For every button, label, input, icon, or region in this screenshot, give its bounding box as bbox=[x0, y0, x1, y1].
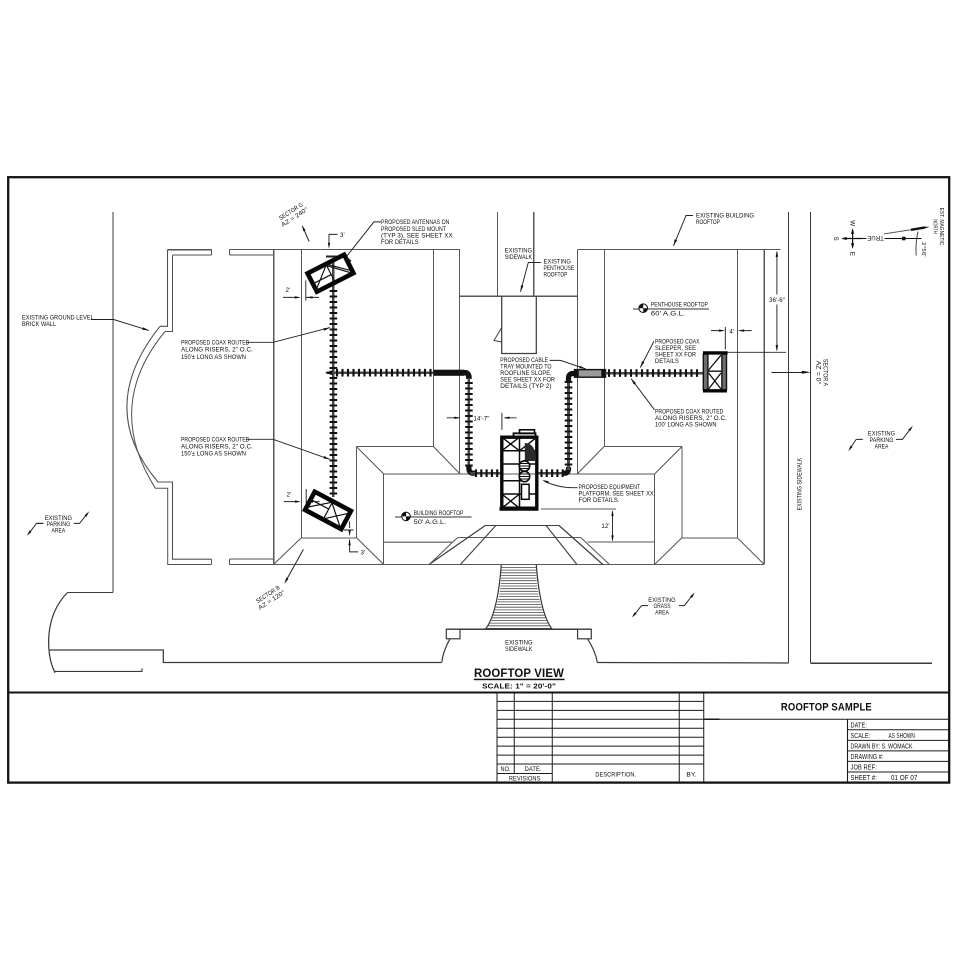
svg-text:DRAWING #:: DRAWING #: bbox=[851, 754, 884, 761]
svg-text:DESCRIPTION.: DESCRIPTION. bbox=[595, 771, 636, 778]
svg-text:BUILDING ROOFTOP: BUILDING ROOFTOP bbox=[414, 510, 464, 517]
svg-text:3': 3' bbox=[361, 549, 366, 556]
svg-text:FOR DETAILS: FOR DETAILS bbox=[381, 239, 419, 246]
svg-text:50' A.G.L.: 50' A.G.L. bbox=[414, 519, 447, 526]
svg-text:3': 3' bbox=[340, 232, 345, 239]
svg-text:NORTH: NORTH bbox=[932, 219, 938, 234]
svg-text:AREA: AREA bbox=[875, 443, 889, 450]
svg-text:ROOFTOP SAMPLE: ROOFTOP SAMPLE bbox=[781, 702, 872, 714]
svg-text:SIDEWALK: SIDEWALK bbox=[505, 255, 532, 261]
svg-text:W: W bbox=[849, 220, 856, 226]
svg-text:SCALE: 1" = 20'-0": SCALE: 1" = 20'-0" bbox=[482, 682, 556, 691]
svg-text:2': 2' bbox=[286, 287, 291, 294]
svg-text:PROPOSED COAX ROUTED: PROPOSED COAX ROUTED bbox=[181, 340, 250, 347]
svg-text:E: E bbox=[849, 252, 856, 256]
svg-text:AZ = 0°: AZ = 0° bbox=[814, 361, 821, 385]
svg-text:AREA: AREA bbox=[655, 610, 669, 617]
svg-text:4': 4' bbox=[729, 328, 734, 335]
svg-text:AS SHOWN: AS SHOWN bbox=[889, 733, 915, 740]
svg-text:EXISTING SIDEWALK: EXISTING SIDEWALK bbox=[798, 458, 804, 511]
svg-text:PROPOSED COAX ROUTED: PROPOSED COAX ROUTED bbox=[181, 436, 250, 443]
svg-text:EXISTING: EXISTING bbox=[505, 249, 533, 255]
svg-text:TRUE: TRUE bbox=[867, 234, 884, 240]
svg-text:REVISIONS: REVISIONS bbox=[509, 776, 541, 783]
svg-text:SHEET #:: SHEET #: bbox=[851, 775, 877, 782]
svg-text:DATE.: DATE. bbox=[525, 766, 542, 773]
svg-text:ALONG RISERS, 2" O.C.: ALONG RISERS, 2" O.C. bbox=[181, 443, 253, 450]
svg-text:01 OF 07: 01 OF 07 bbox=[891, 775, 917, 782]
svg-text:ROOFTOP: ROOFTOP bbox=[544, 271, 568, 278]
svg-text:S: S bbox=[832, 236, 839, 240]
svg-text:JOB REF:: JOB REF: bbox=[851, 765, 877, 772]
svg-text:PENTHOUSE ROOFTOP: PENTHOUSE ROOFTOP bbox=[651, 302, 708, 309]
svg-text:SECTOR A: SECTOR A bbox=[822, 359, 829, 387]
svg-text:2': 2' bbox=[287, 491, 292, 498]
svg-text:AREA: AREA bbox=[52, 528, 66, 535]
svg-text:14'-7": 14'-7" bbox=[473, 415, 489, 422]
svg-text:150'± LONG AS SHOWN: 150'± LONG AS SHOWN bbox=[181, 451, 246, 458]
svg-text:SIDEWALK: SIDEWALK bbox=[505, 647, 532, 653]
svg-text:ROOFTOP: ROOFTOP bbox=[696, 219, 720, 226]
svg-text:60' A.G.L.: 60' A.G.L. bbox=[651, 311, 685, 318]
svg-text:SCALE:: SCALE: bbox=[851, 733, 871, 740]
svg-text:DRAWN BY: S. WOMACK: DRAWN BY: S. WOMACK bbox=[851, 744, 913, 751]
svg-text:100' LONG AS SHOWN: 100' LONG AS SHOWN bbox=[655, 421, 717, 428]
svg-text:2°58': 2°58' bbox=[920, 242, 926, 257]
svg-text:DATE:: DATE: bbox=[851, 723, 868, 730]
svg-text:12': 12' bbox=[601, 523, 609, 530]
svg-text:36'-6": 36'-6" bbox=[769, 297, 785, 304]
svg-text:ALONG RISERS, 2" O.C.: ALONG RISERS, 2" O.C. bbox=[181, 347, 253, 354]
svg-text:BY.: BY. bbox=[686, 771, 696, 778]
svg-text:150'± LONG AS SHOWN: 150'± LONG AS SHOWN bbox=[181, 354, 246, 361]
svg-text:EXISTING: EXISTING bbox=[505, 641, 533, 647]
svg-text:DETAILS (TYP 2): DETAILS (TYP 2) bbox=[500, 383, 551, 390]
svg-text:NO.: NO. bbox=[501, 766, 511, 773]
svg-text:FOR DETAILS.: FOR DETAILS. bbox=[579, 497, 620, 504]
svg-text:DETAILS: DETAILS bbox=[655, 358, 679, 365]
svg-text:EST. MAGNETIC: EST. MAGNETIC bbox=[938, 208, 944, 246]
svg-text:ROOFTOP VIEW: ROOFTOP VIEW bbox=[474, 666, 564, 680]
svg-text:BRICK WALL: BRICK WALL bbox=[22, 321, 57, 328]
